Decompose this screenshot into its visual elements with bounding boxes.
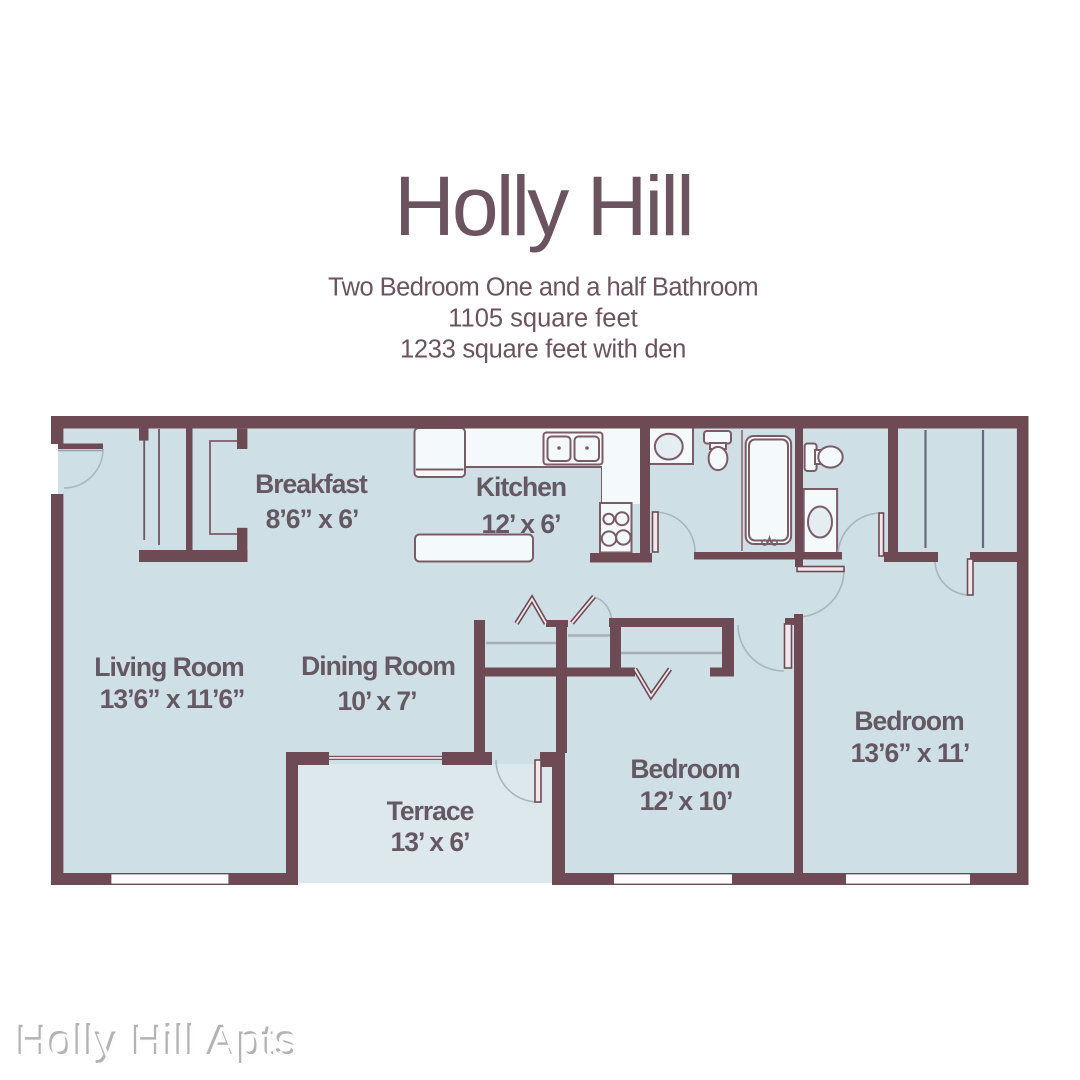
svg-text:13’6” x 11’: 13’6” x 11’ [851,738,970,768]
svg-text:1233 square feet with den: 1233 square feet with den [400,336,686,364]
svg-text:13’6” x 11’6”: 13’6” x 11’6” [100,684,245,714]
svg-text:10’ x 7’: 10’ x 7’ [338,686,417,716]
svg-text:Breakfast: Breakfast [255,469,368,499]
svg-text:Kitchen: Kitchen [476,472,566,502]
svg-text:Terrace: Terrace [387,796,474,826]
svg-text:Bedroom: Bedroom [630,754,739,784]
svg-text:Bedroom: Bedroom [854,706,963,736]
svg-text:12’ x 10’: 12’ x 10’ [640,786,733,816]
svg-text:Dining Room: Dining Room [301,651,455,681]
svg-text:12’ x 6’: 12’ x 6’ [482,509,561,539]
svg-text:Holly Hill Apts: Holly Hill Apts [17,1018,299,1066]
svg-text:Living Room: Living Room [94,652,243,682]
svg-text:1105 square feet: 1105 square feet [448,305,638,333]
svg-text:8’6” x 6’: 8’6” x 6’ [266,504,359,534]
svg-text:13’ x 6’: 13’ x 6’ [391,827,470,857]
svg-text:Holly Hill: Holly Hill [394,159,692,253]
svg-text:Two Bedroom One and a half Bat: Two Bedroom One and a half Bathroom [328,274,758,302]
